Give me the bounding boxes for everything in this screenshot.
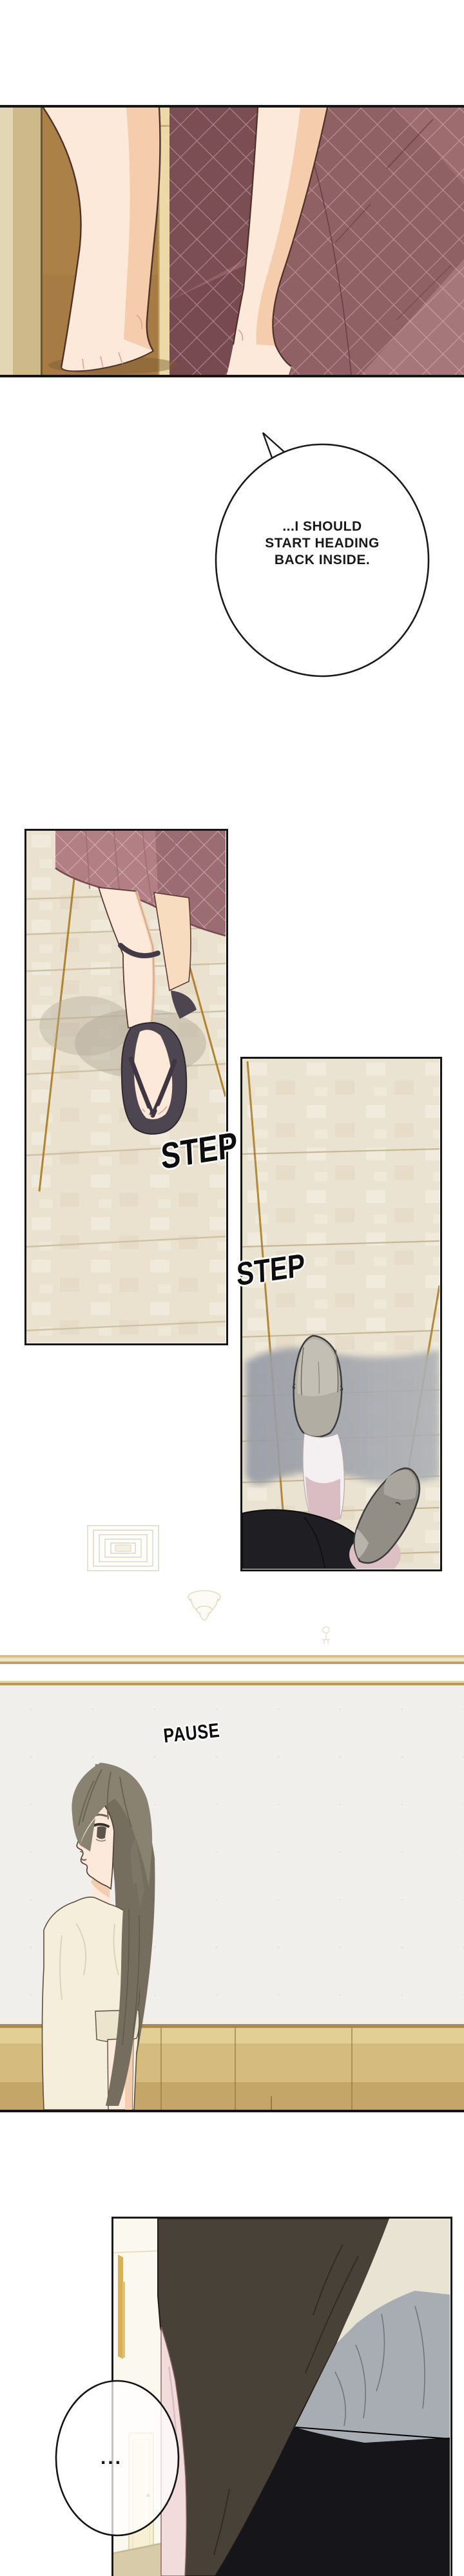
panel-walking-art: [26, 831, 226, 1343]
speech-line: START HEADING: [251, 535, 393, 552]
ceiling-molding: [0, 1655, 464, 1664]
panel-room-art: [0, 108, 464, 375]
panel-seam-notch: [271, 2096, 272, 2110]
speech-line: BACK INSIDE.: [251, 552, 393, 569]
panel-room-closeup: [0, 105, 464, 377]
speech-line: ...I SHOULD: [251, 518, 393, 535]
panel-walking-topdown: [240, 1057, 442, 1571]
comic-page: ...I SHOULD START HEADING BACK INSIDE.: [0, 0, 464, 2576]
woman-profile: [39, 1755, 161, 2110]
ceiling-sprinkler: [320, 1625, 333, 1646]
speech-text-ellipsis: ...: [101, 2455, 122, 2461]
flip-flop-front: [122, 1023, 187, 1134]
panel-walking-flipflops: [24, 829, 228, 1345]
speech-text-main: ...I SHOULD START HEADING BACK INSIDE.: [251, 518, 393, 569]
ceiling-detector: [187, 1589, 222, 1623]
panel-seam: [235, 2028, 236, 2110]
panel-topdown-art: [242, 1059, 440, 1569]
scene-divider-line: [0, 2110, 464, 2112]
ceiling-vent: [87, 1525, 159, 1571]
wall-trim-line: [0, 1681, 464, 1685]
panel-seam: [351, 2028, 353, 2110]
